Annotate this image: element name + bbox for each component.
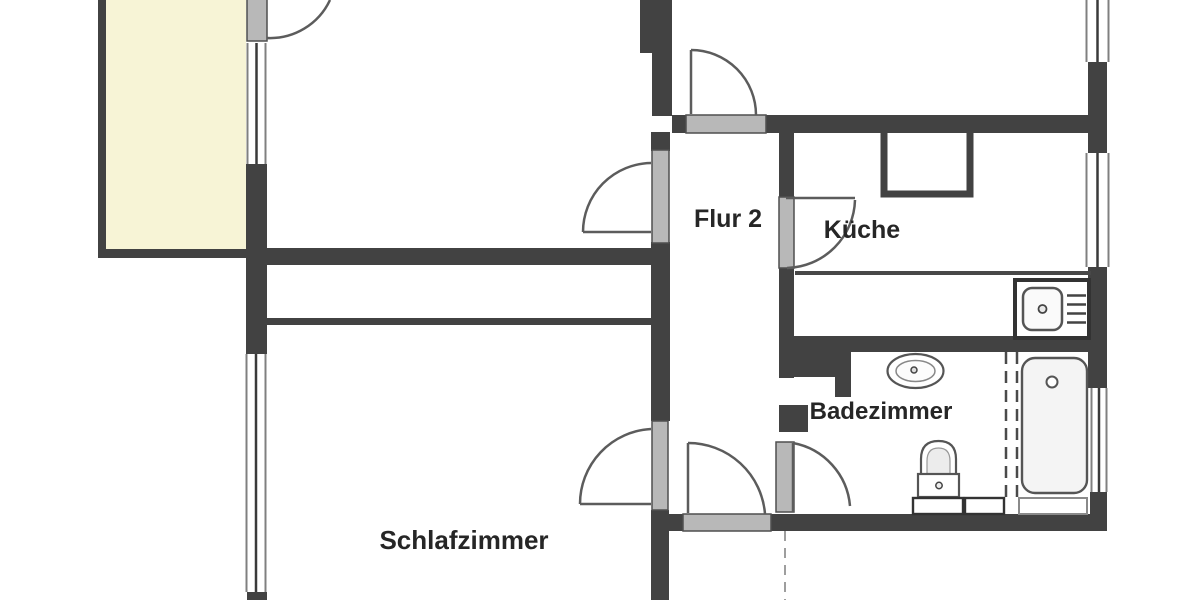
bath-bench-block [913, 498, 963, 514]
window-bathroom-east [1090, 388, 1108, 492]
toilet-button [936, 482, 942, 488]
wall-segment [651, 242, 670, 421]
wall-segment [771, 514, 1107, 531]
floorplan-canvas: Flur 2 Küche Badezimmer Schlafzimmer [0, 0, 1200, 600]
bathtub-drain [1047, 377, 1058, 388]
wall-segment [835, 350, 851, 397]
door-bathroom [776, 442, 794, 512]
label-schlafzimmer: Schlafzimmer [379, 525, 548, 555]
kitchen-sink-faucet [1039, 305, 1047, 313]
kitchen-sink [1015, 280, 1089, 338]
wall-segment [651, 132, 670, 151]
swing-bedroom-arc [580, 429, 651, 504]
kitchen-counter-edge [795, 271, 1091, 275]
door-balcony [247, 0, 267, 41]
label-kueche: Küche [824, 216, 901, 244]
toilet-bowl-inner [927, 448, 950, 477]
bath-bench-block [965, 498, 1004, 514]
wall-segment [668, 514, 683, 531]
wall-segment [766, 115, 1093, 133]
door-hall-south [683, 514, 771, 531]
door-bedroom [652, 421, 668, 510]
label-flur-2: Flur 2 [694, 205, 762, 233]
wall-segment [779, 268, 794, 378]
swing-living-arc [583, 163, 651, 232]
swing-hall-south-arc [688, 443, 765, 514]
door-kitchen [779, 197, 794, 268]
wall-segment [265, 248, 657, 265]
door-living-room [652, 150, 669, 243]
label-badezimmer: Badezimmer [810, 398, 953, 425]
fixtures [884, 133, 1089, 514]
balcony-wall-left [98, 0, 106, 258]
wall-segment [652, 50, 672, 116]
bathtub [1022, 358, 1087, 493]
toilet [918, 441, 959, 497]
swing-balcony-arc [267, 0, 330, 38]
window-kitchen-east [1085, 153, 1110, 267]
washbasin-drain [911, 367, 917, 373]
wall-segment [265, 318, 657, 325]
wall-segment [246, 163, 267, 354]
washbasin [888, 354, 944, 388]
balcony-wall-bottom [98, 249, 248, 258]
wall-segment [672, 115, 687, 133]
door-entry [686, 115, 766, 133]
wall-segment [1088, 62, 1107, 153]
wall-segment [247, 592, 267, 600]
door-openings [247, 0, 794, 531]
window-living-west [246, 43, 267, 164]
wall-segment [640, 0, 672, 53]
bathtub-apron [1019, 498, 1087, 514]
swing-bathroom-arc [793, 443, 850, 506]
balcony [98, 0, 248, 258]
wall-segment [651, 510, 669, 600]
swing-entry-arc [691, 50, 756, 115]
stove-counter [884, 133, 970, 194]
wall-segment [779, 133, 794, 198]
balcony-floor [105, 0, 246, 249]
floorplan-svg: Flur 2 Küche Badezimmer Schlafzimmer [0, 0, 1200, 600]
window-east-top [1085, 0, 1110, 62]
window-bedroom-west [245, 354, 267, 592]
wall-segment [779, 405, 808, 432]
partitions [785, 352, 1017, 600]
wall-segment [794, 352, 836, 377]
